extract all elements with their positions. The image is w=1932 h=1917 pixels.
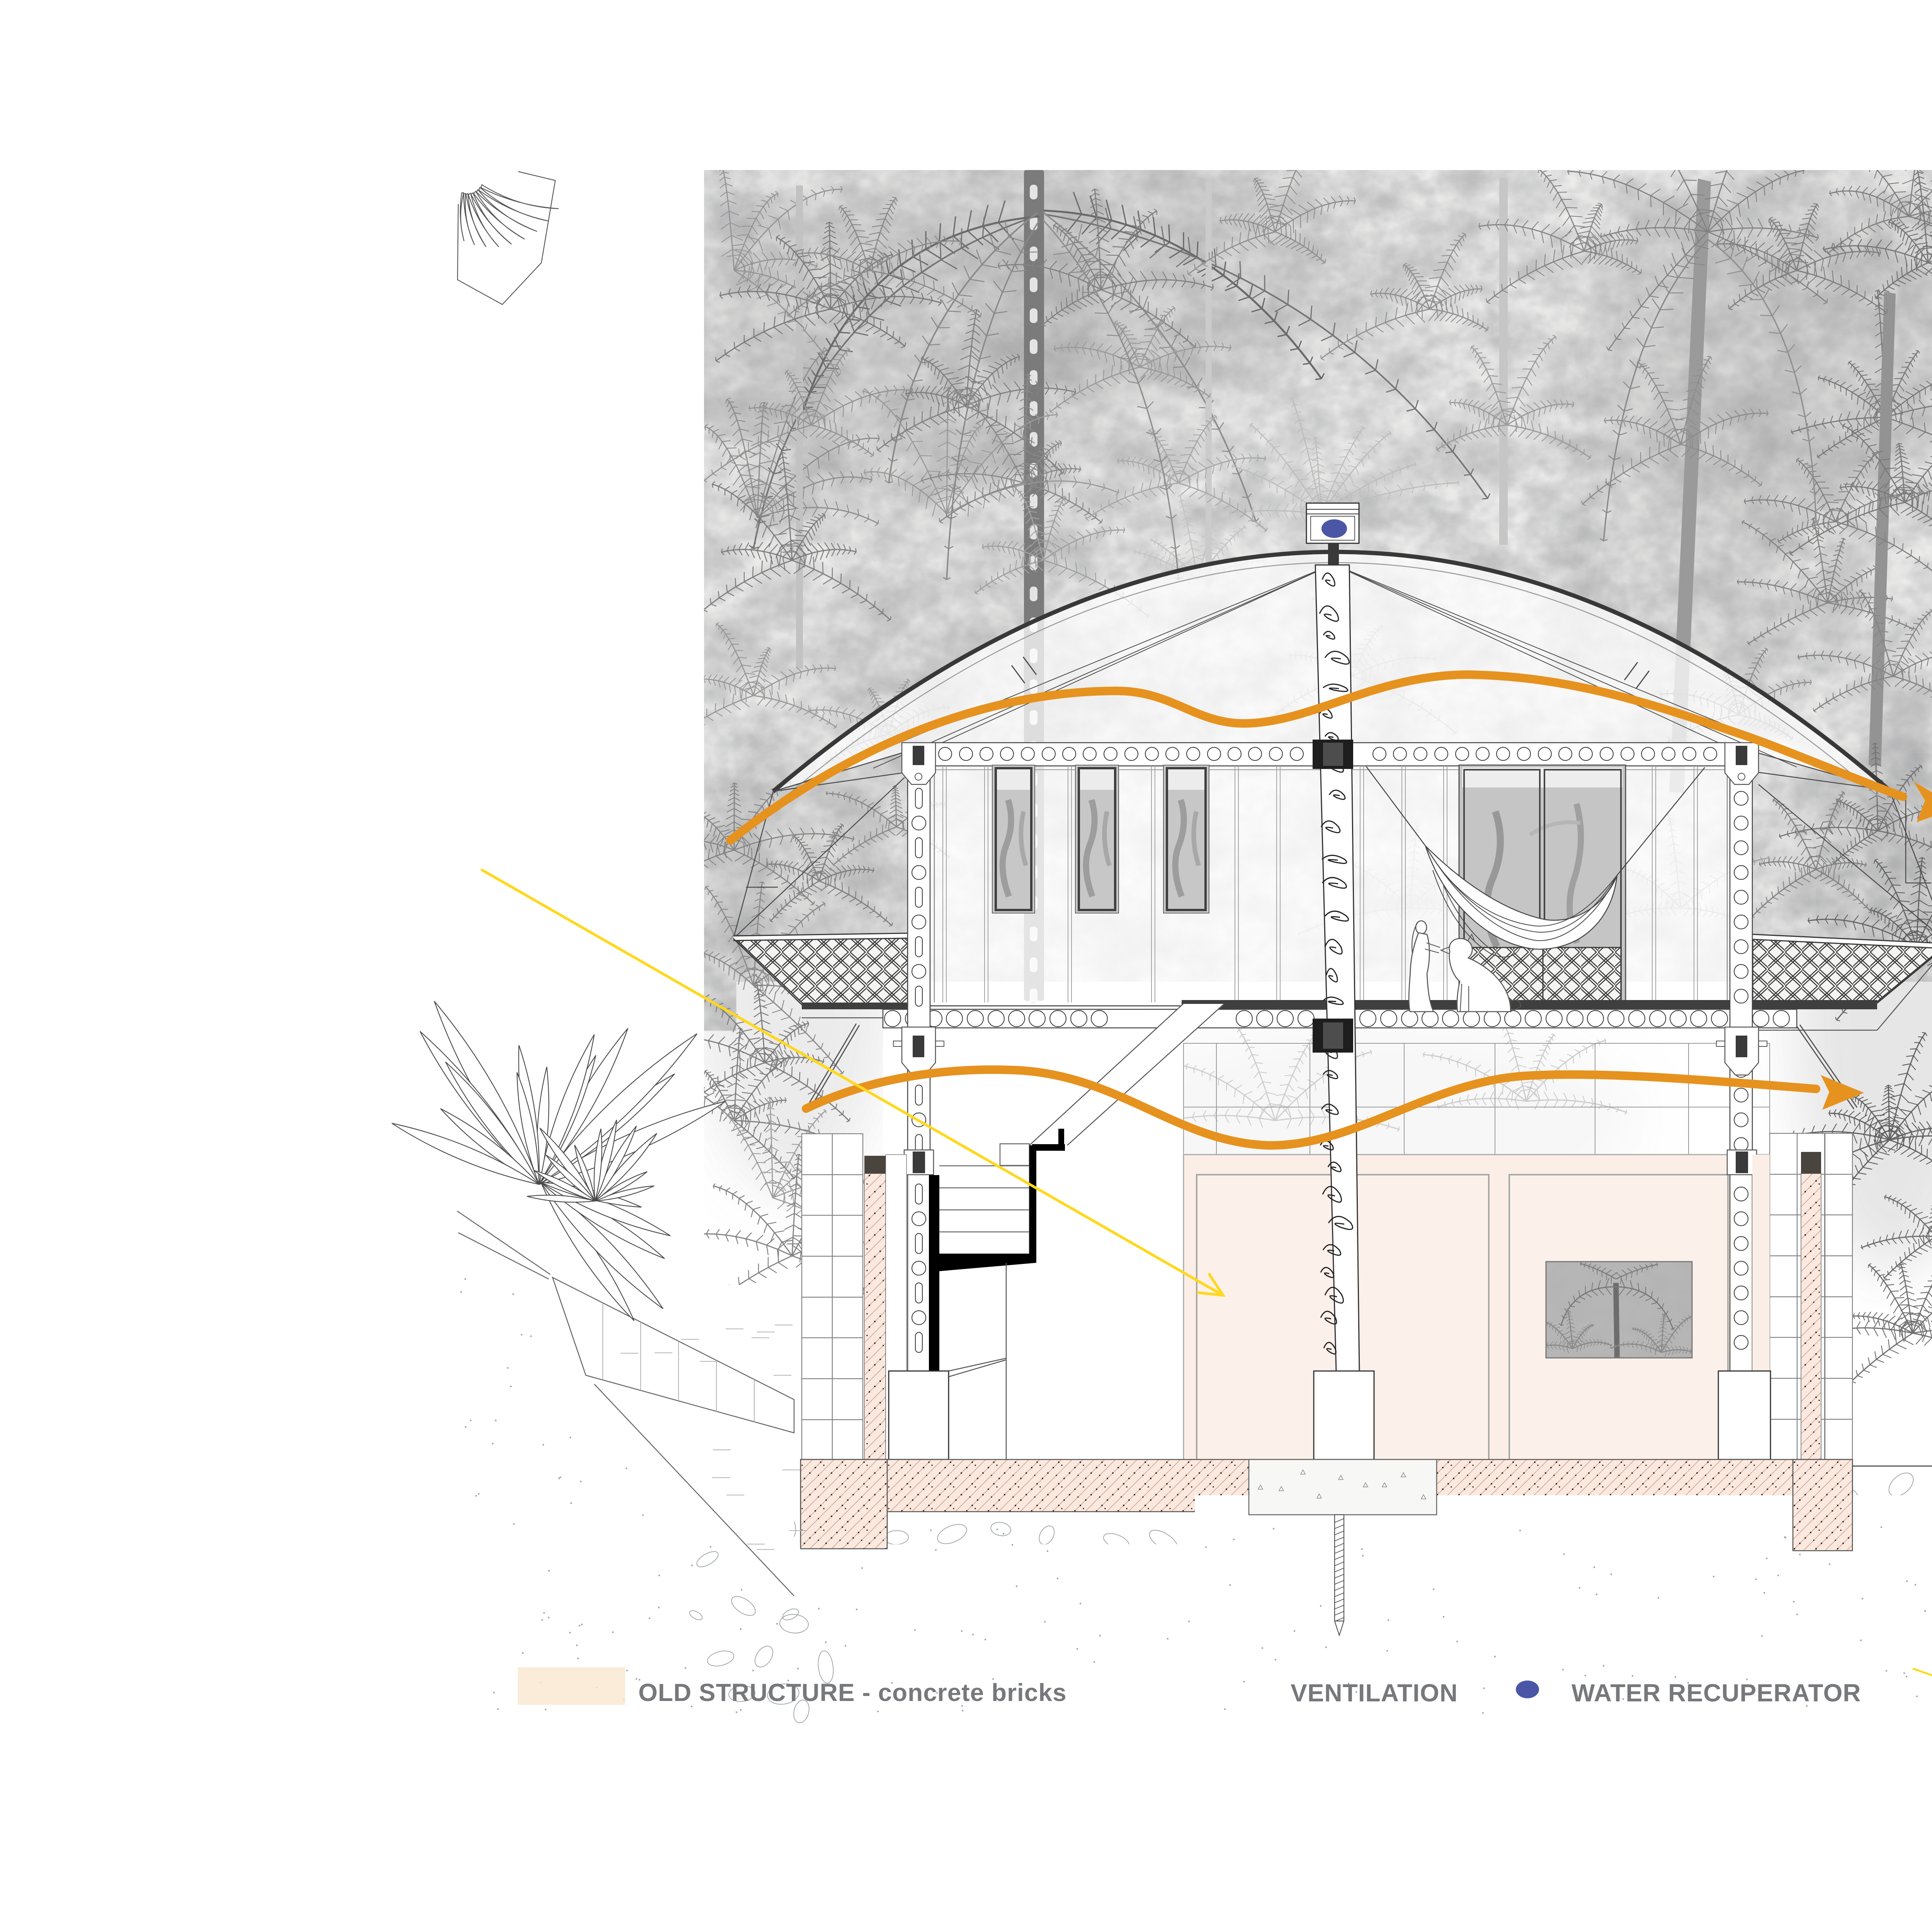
svg-text:OLD STRUCTURE - concrete brick: OLD STRUCTURE - concrete bricks xyxy=(638,1679,1067,1706)
svg-text:VENTILATION: VENTILATION xyxy=(1291,1679,1458,1707)
svg-text:WATER RECUPERATOR: WATER RECUPERATOR xyxy=(1571,1679,1861,1707)
